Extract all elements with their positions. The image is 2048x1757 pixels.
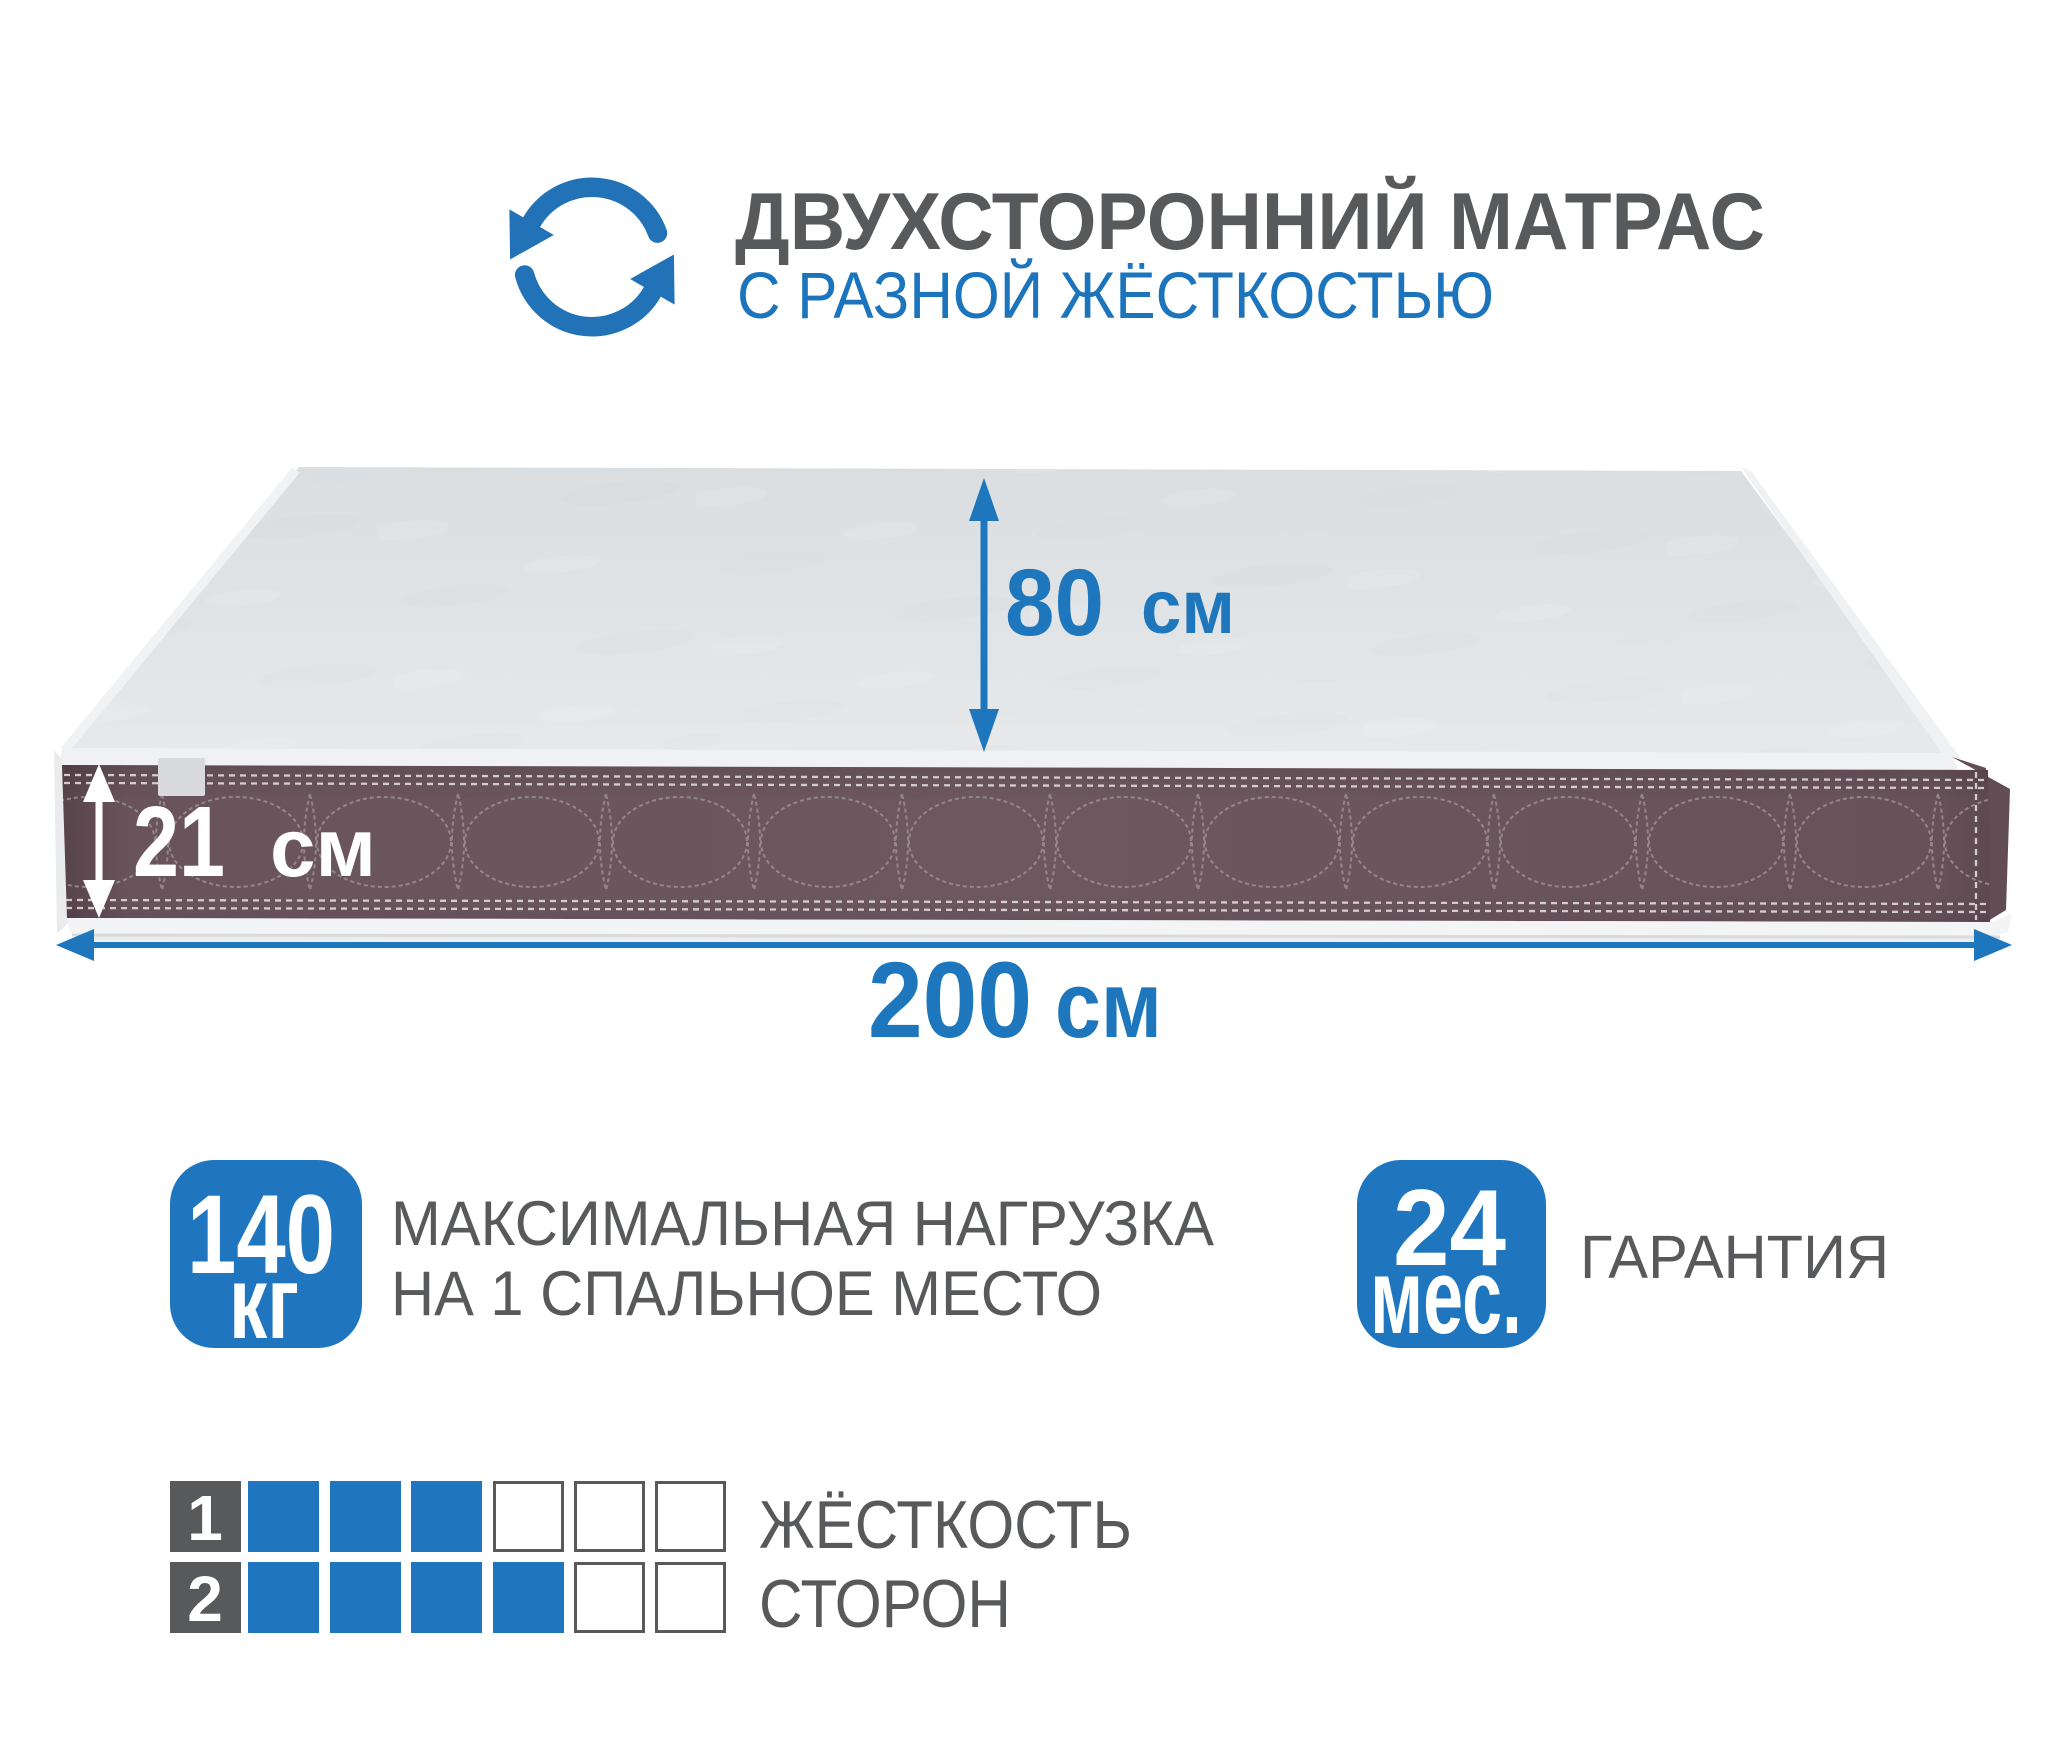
svg-text:см: см (270, 801, 376, 894)
svg-text:НА 1 СПАЛЬНОЕ МЕСТО: НА 1 СПАЛЬНОЕ МЕСТО (391, 1259, 1102, 1329)
svg-text:21: 21 (133, 786, 225, 898)
svg-text:1: 1 (187, 1482, 223, 1554)
svg-text:мес.: мес. (1370, 1236, 1522, 1356)
svg-text:ГАРАНТИЯ: ГАРАНТИЯ (1580, 1223, 1889, 1291)
svg-text:кг: кг (229, 1245, 299, 1360)
svg-text:80: 80 (1005, 550, 1104, 656)
svg-text:200: 200 (868, 939, 1032, 1060)
svg-text:см: см (1141, 565, 1235, 650)
svg-text:см: см (1055, 952, 1162, 1057)
svg-text:МАКСИМАЛЬНАЯ НАГРУЗКА: МАКСИМАЛЬНАЯ НАГРУЗКА (391, 1189, 1214, 1259)
svg-text:С РАЗНОЙ ЖЁСТКОСТЬЮ: С РАЗНОЙ ЖЁСТКОСТЬЮ (737, 257, 1494, 332)
svg-text:2: 2 (187, 1563, 223, 1635)
svg-text:СТОРОН: СТОРОН (759, 1566, 1011, 1642)
svg-text:ДВУХСТОРОННИЙ МАТРАС: ДВУХСТОРОННИЙ МАТРАС (735, 175, 1765, 267)
svg-text:ЖЁСТКОСТЬ: ЖЁСТКОСТЬ (759, 1487, 1132, 1563)
